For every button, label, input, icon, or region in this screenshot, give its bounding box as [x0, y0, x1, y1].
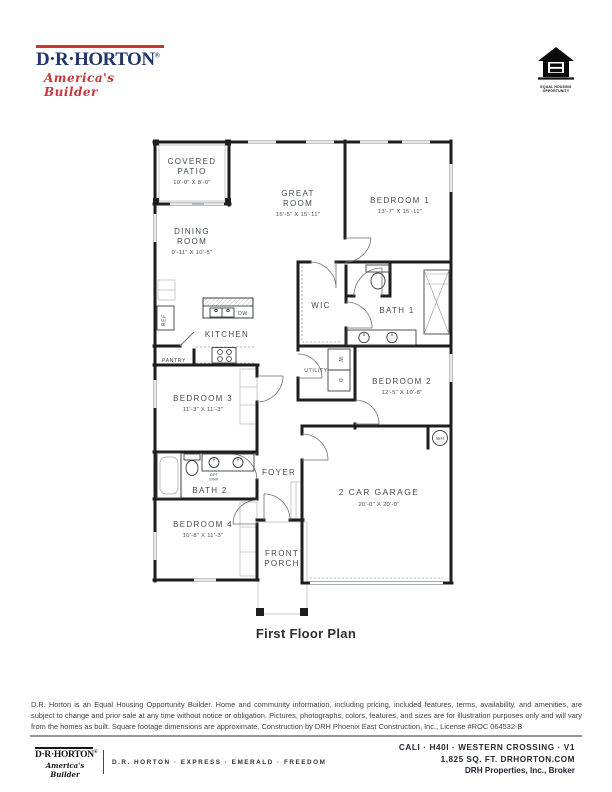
label-pantry: PANTRY: [162, 358, 186, 364]
footer-broker-line: DRH Properties, Inc., Broker: [399, 766, 575, 775]
garage-door: [310, 580, 443, 585]
plan-caption: First Floor Plan: [0, 626, 612, 641]
plan-posts: [153, 140, 308, 617]
label-bath2: BATH 2: [192, 486, 227, 495]
footer-drhorton-logo: D·R·HORTON® America's Builder: [35, 747, 95, 779]
svg-text:PATIO: PATIO: [177, 167, 206, 176]
label-bath1: BATH 1: [379, 306, 414, 315]
dims-bedroom1: 13'-7" X 15'-11": [378, 209, 422, 215]
footer-plan-code: CALI · H40I · WESTERN CROSSING · V1: [399, 743, 575, 752]
label-wh: WH: [436, 436, 444, 441]
label-bedroom2: BEDROOM 2: [372, 377, 432, 386]
label-washer: W: [337, 357, 343, 363]
footer-divider-rule: [30, 735, 582, 737]
svg-text:SINK: SINK: [209, 478, 219, 482]
range-cooktop: [212, 348, 236, 364]
logo-wordmark: D·R·HORTON®: [36, 50, 166, 70]
patio-sliding-door: [170, 202, 224, 206]
equal-housing-house-icon: [536, 46, 576, 80]
disclaimer-text: D.R. Horton is an Equal Housing Opportun…: [31, 699, 582, 732]
flyer-page: D·R·HORTON® America's Builder EQUAL HOUS…: [0, 0, 612, 792]
dims-bedroom3: 11'-3" X 11'-3": [183, 407, 223, 413]
label-great-room: GREAT: [281, 189, 314, 198]
label-utility: UTILITY: [304, 368, 328, 374]
floor-plan-svg: COVERED PATIO 10'-0" X 8'-0" GREAT ROOM …: [150, 134, 460, 626]
footer-brand-text: D·R·HORTON: [35, 750, 94, 760]
washer-dryer: [328, 349, 350, 391]
logo-brand-text: D·R·HORTON: [36, 49, 155, 70]
drhorton-logo: D·R·HORTON® America's Builder: [36, 45, 166, 99]
footer-plan-info: CALI · H40I · WESTERN CROSSING · V1 1,82…: [399, 743, 575, 775]
label-bedroom4: BEDROOM 4: [173, 520, 233, 529]
label-foyer: FOYER: [262, 468, 296, 477]
footer-registered-mark: ®: [94, 750, 97, 755]
label-bedroom3: BEDROOM 3: [173, 394, 233, 403]
equal-housing-logo: EQUAL HOUSING OPPORTUNITY: [533, 46, 579, 93]
dims-bedroom4: 10'-8" X 11'-3": [183, 533, 224, 539]
label-opt-sink: OPT: [210, 473, 219, 477]
dims-bedroom2: 12'-5" X 10'-8": [381, 390, 422, 396]
label-garage: 2 CAR GARAGE: [339, 487, 420, 497]
label-kitchen: KITCHEN: [205, 330, 249, 339]
footer-brand-family-line: D.R. HORTON · EXPRESS · EMERALD · FREEDO…: [112, 759, 326, 766]
svg-text:ROOM: ROOM: [283, 199, 313, 208]
dims-covered-patio: 10'-0" X 8'-0": [173, 180, 211, 186]
label-ref: REF: [162, 314, 168, 326]
footer-sqft-website: 1,825 SQ. FT. DRHORTON.COM: [399, 755, 575, 764]
logo-tagline: America's Builder: [44, 71, 166, 99]
label-bedroom1: BEDROOM 1: [370, 196, 430, 205]
dims-great-room: 15'-5" X 15'-11": [276, 212, 320, 218]
svg-text:PORCH: PORCH: [264, 559, 299, 568]
label-covered-patio: COVERED: [168, 157, 217, 166]
label-front-porch: FRONT: [265, 549, 299, 558]
dims-dining-room: 9'-11" X 10'-5": [172, 250, 213, 256]
label-dw: DW: [238, 311, 248, 317]
footer-vertical-divider: [103, 750, 104, 774]
label-dining-room: DINING: [174, 227, 210, 236]
svg-text:ROOM: ROOM: [177, 237, 207, 246]
dims-garage: 20'-0" X 20'-0": [358, 502, 399, 508]
footer-logo-tagline: America's Builder: [35, 761, 95, 779]
label-dryer: D: [337, 378, 343, 382]
registered-mark: ®: [155, 52, 160, 60]
equal-housing-text-line2: OPPORTUNITY: [533, 89, 579, 93]
footer-logo-rule: [35, 747, 93, 749]
footer-logo-wordmark: D·R·HORTON®: [35, 750, 95, 760]
label-wic: WIC: [311, 301, 330, 310]
logo-red-rule: [36, 45, 164, 48]
